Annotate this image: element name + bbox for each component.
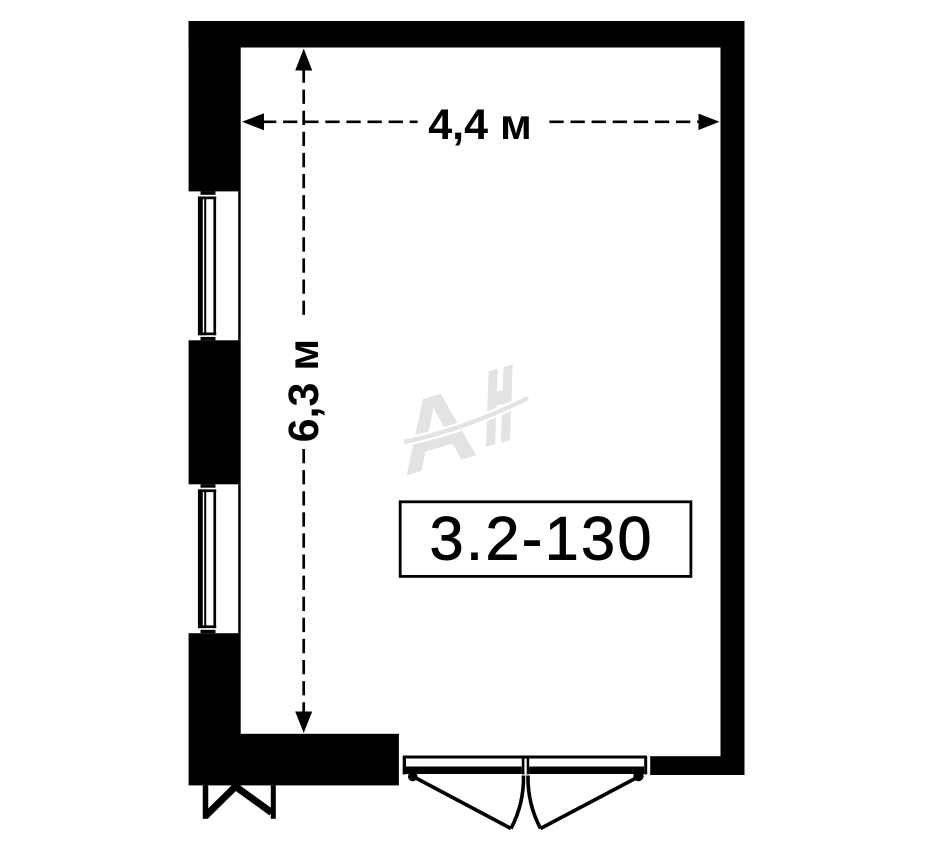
svg-text:3.2-130: 3.2-130	[430, 505, 654, 573]
svg-text:4,4 м: 4,4 м	[428, 101, 532, 149]
svg-text:6,3 м: 6,3 м	[280, 339, 328, 443]
